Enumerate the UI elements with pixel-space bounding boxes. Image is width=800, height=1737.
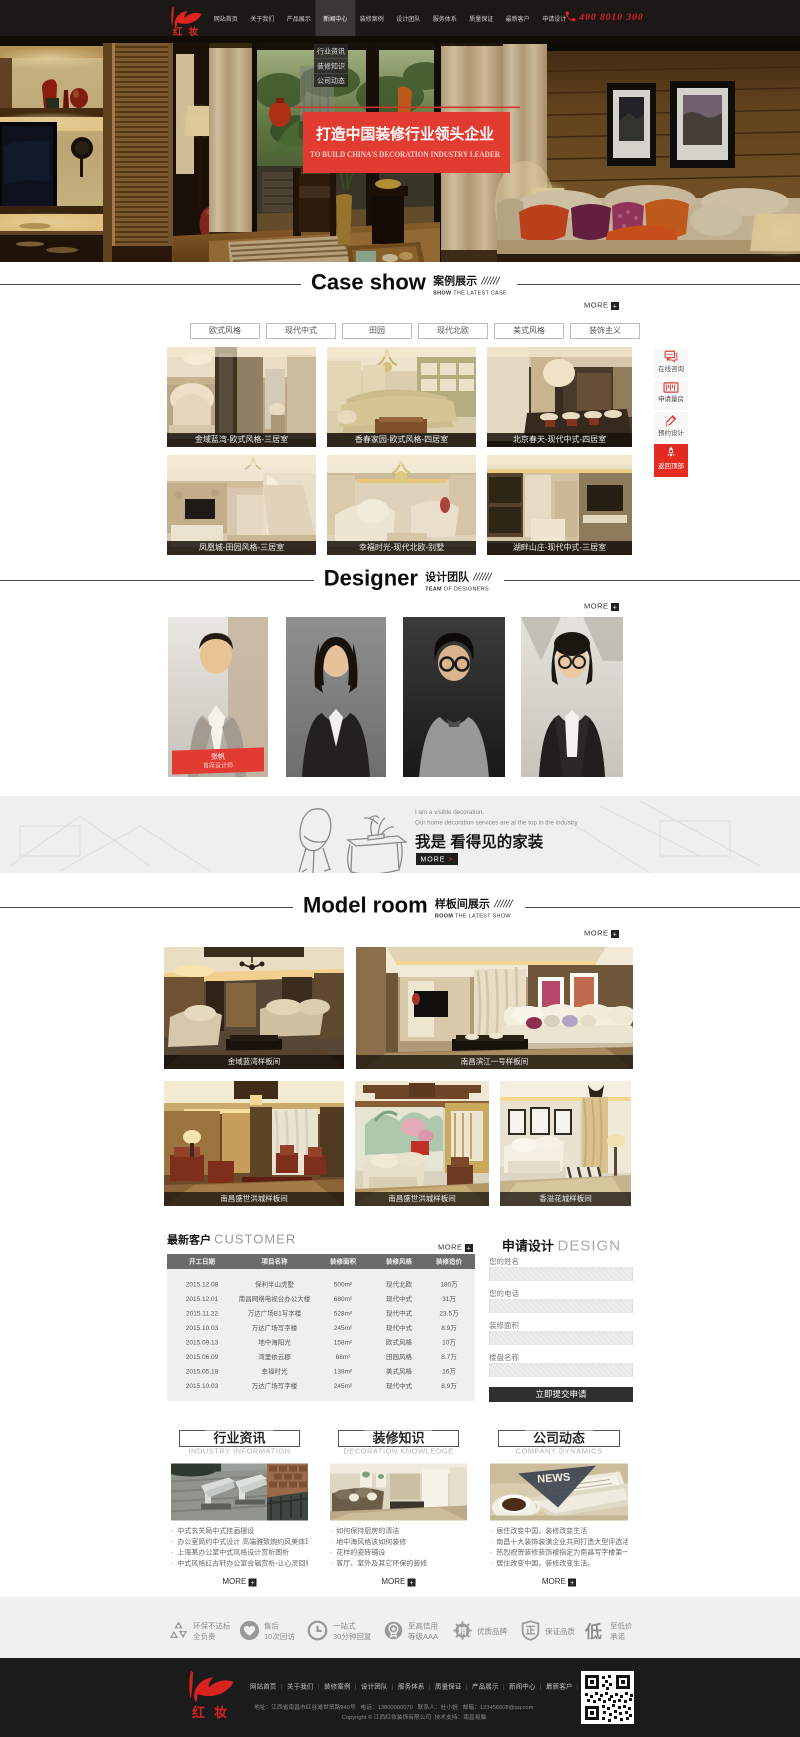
svg-text:精: 精 (458, 1625, 467, 1636)
svg-text:正: 正 (525, 1625, 535, 1637)
svg-text:打造中国装修行业领头企业: 打造中国装修行业领头企业 (316, 125, 494, 143)
svg-text:NEWS: NEWS (537, 1471, 571, 1485)
svg-text:红妆: 红妆 (192, 1705, 236, 1720)
svg-text:TO BUILD CHINA'S DECORATION IN: TO BUILD CHINA'S DECORATION INDUSTRY LEA… (310, 149, 501, 159)
